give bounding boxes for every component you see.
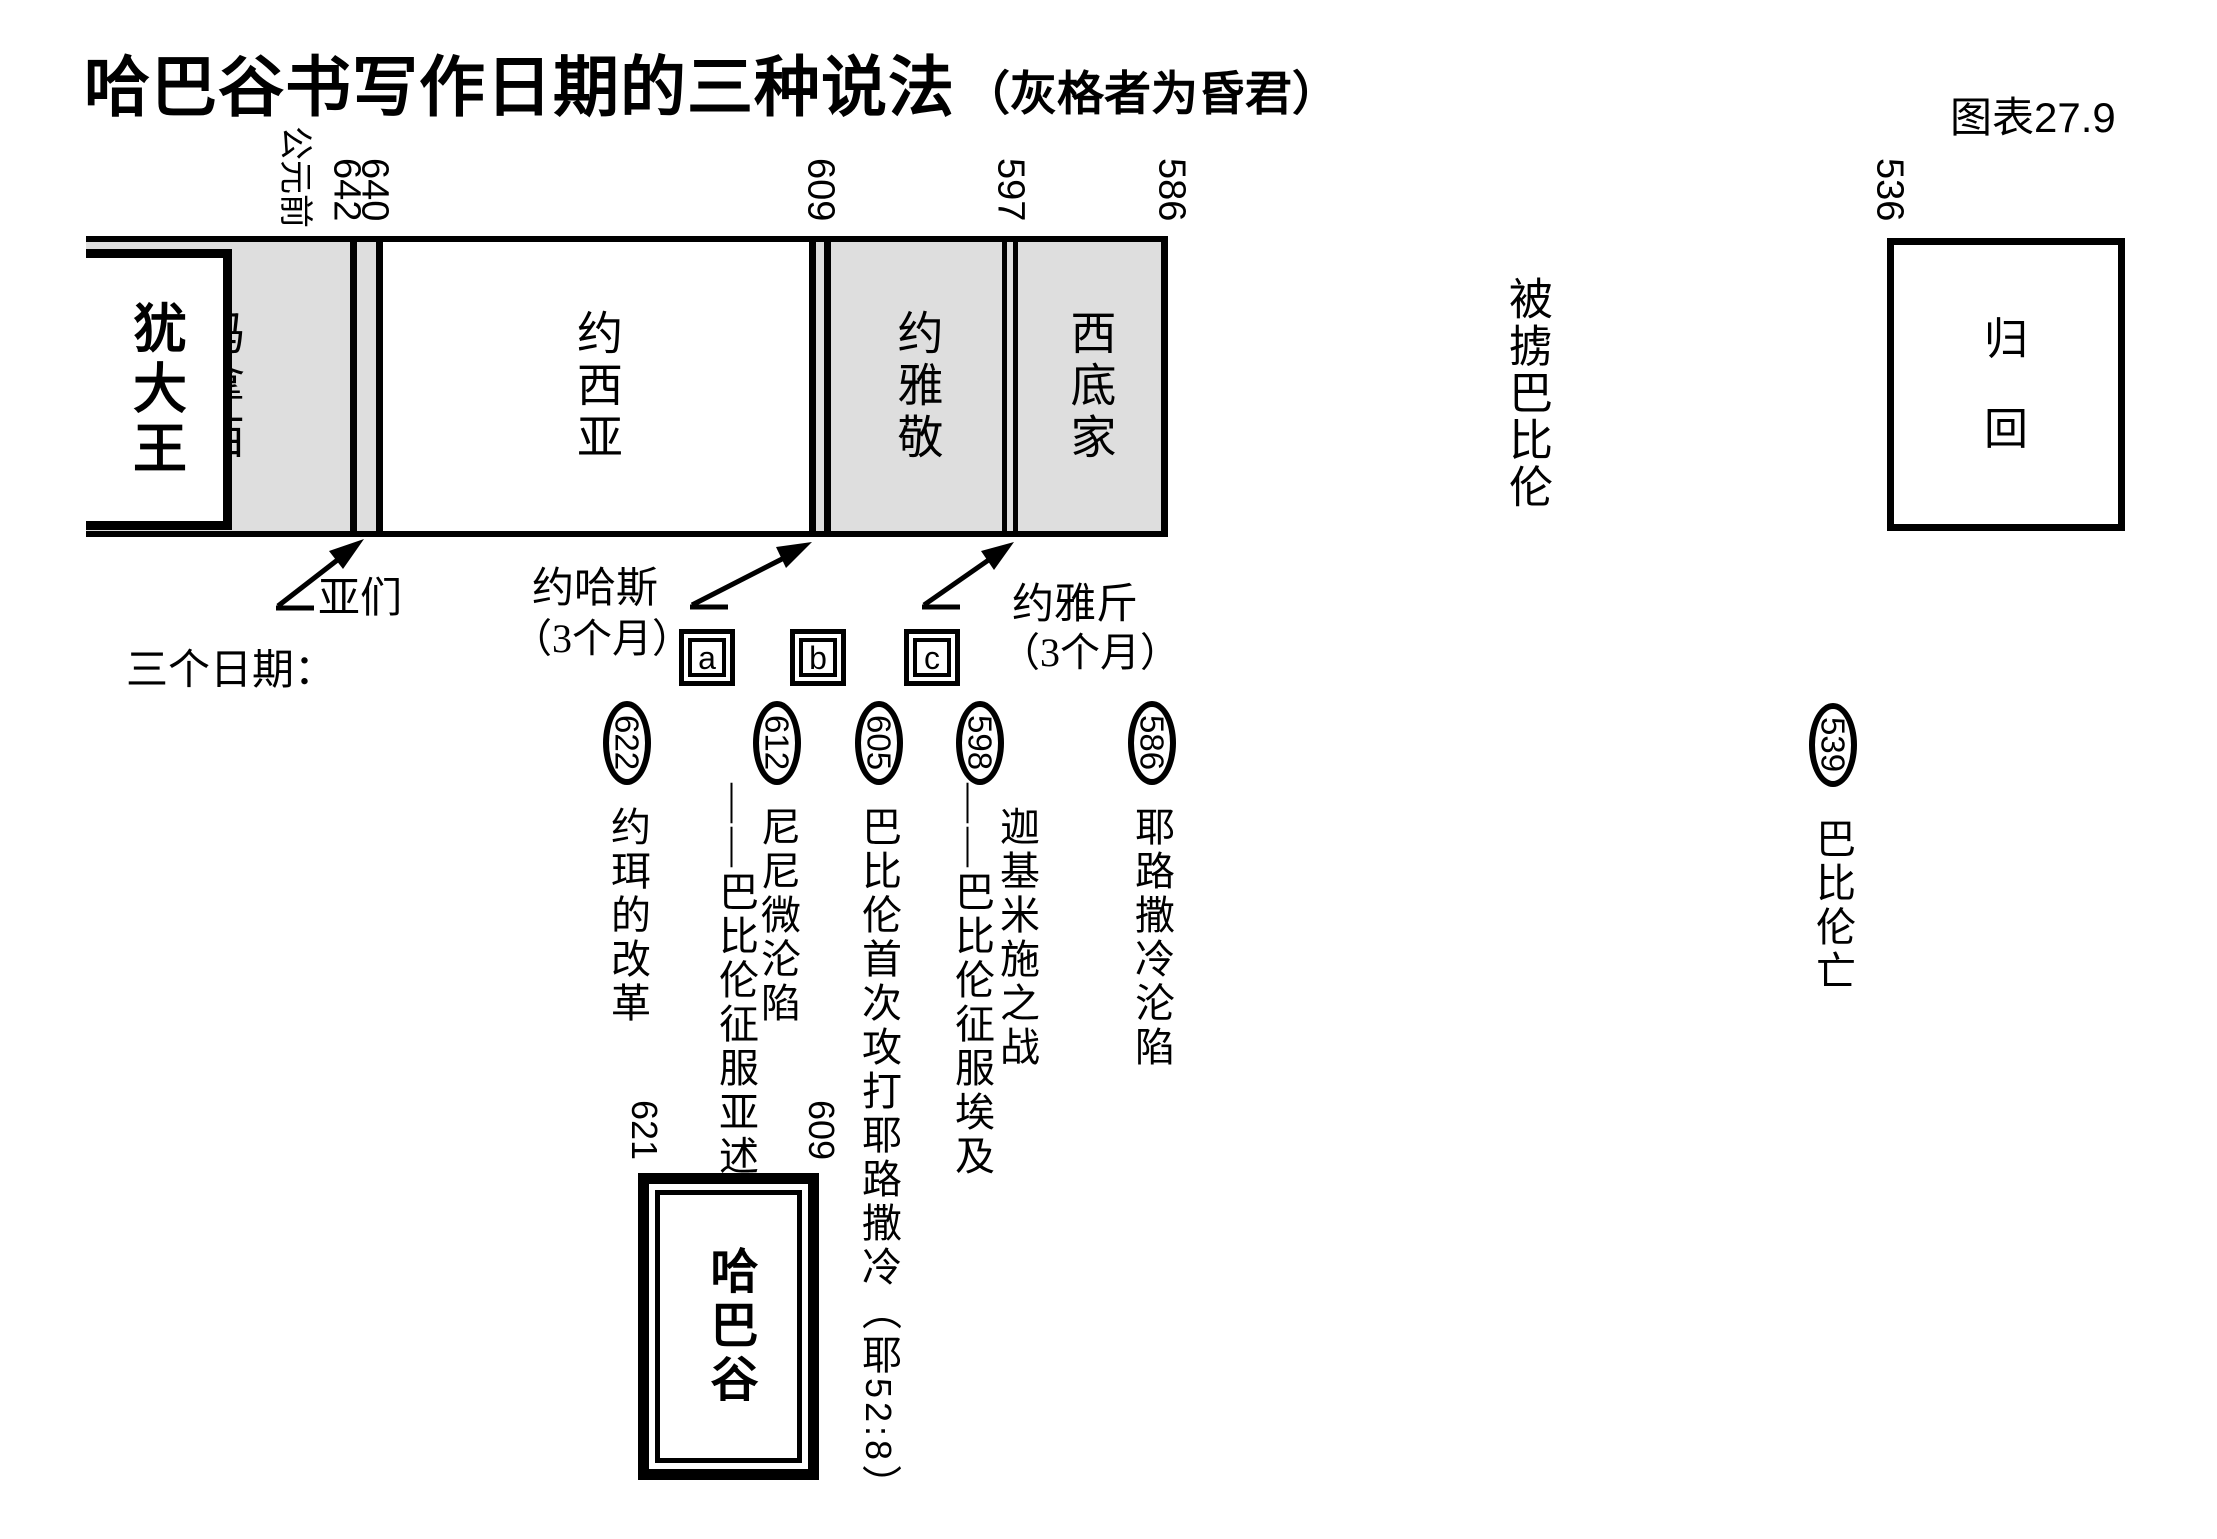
year-label-640: 640 [359,158,389,221]
option-letter-c: c [913,638,951,677]
event-oval-598: 598 [956,701,1004,785]
segment-jehoahaz-strip [809,242,831,531]
event-oval-586: 586 [1128,701,1176,785]
event-text-605-ref: 52:8 [858,1378,899,1464]
title-note: （灰格者为昏君） [963,55,1339,124]
event-text-622: 约珥的改革 [607,806,647,1026]
event-year-622: 622 [611,715,644,770]
segment-zedekiah: 西底家 [1018,242,1168,531]
option-box-b: b [790,629,846,686]
event-oval-612: 612 [753,701,801,785]
habakkuk-box-inner: 哈巴谷 [655,1190,802,1463]
page-title: 哈巴谷书写作日期的三种说法 （灰格者为昏君） [84,34,1339,130]
event-text-605: 巴比伦首次攻打耶路撒冷（耶52:8） [858,806,898,1508]
habakkuk-name: 哈巴谷 [705,1246,753,1408]
habakkuk-end-year: 609 [806,1100,835,1160]
jehoiachin-arrow [922,542,1014,607]
event-year-539: 539 [1817,717,1850,772]
title-main: 哈巴谷书写作日期的三种说法 [84,34,955,130]
option-box-c: c [904,629,960,686]
callout-amon: 亚们 [318,564,402,625]
event-year-612: 612 [761,715,794,770]
three-dates-label: 三个日期： [126,636,336,697]
king-name-zedekiah: 西底家 [1067,309,1113,465]
habakkuk-start-year: 621 [629,1100,658,1160]
event-year-586: 586 [1136,715,1169,770]
event-text-598: 迦基米施之战 [996,806,1036,1070]
year-label-597: 597 [995,158,1025,221]
event-oval-539: 539 [1809,703,1857,787]
event-text-612: 尼尼微沦陷 [757,806,797,1026]
return-box: 归 回 [1887,238,2125,531]
event-text-586: 耶路撒冷沦陷 [1131,806,1171,1070]
return-char-2: 回 [1984,408,2028,452]
event-oval-622: 622 [603,701,651,785]
event-text-605-close: ） [856,1464,901,1508]
era-label: 公元前 [281,126,308,228]
king-name-josiah: 约西亚 [573,309,619,465]
segment-josiah: 约西亚 [383,242,809,531]
return-char-1: 归 [1984,318,2028,362]
segment-jehoiachin-strip [1002,242,1018,531]
callout-jehoahaz-duration: （3个月） [512,606,692,664]
event-year-598: 598 [964,715,997,770]
event-text-612-cont: ——巴比伦征服亚述 [715,783,755,1179]
option-letter-b: b [799,638,837,677]
exile-babylon-label: 被掳巴比伦 [1504,276,1548,511]
event-text-605-main: 巴比伦首次攻打耶路撒冷（耶 [856,806,901,1378]
option-letter-a: a [688,638,726,677]
year-label-609: 609 [805,158,835,221]
kings-timeline-bar: 玛拿西 约西亚 约雅敬 西底家 [86,236,1168,537]
year-label-536: 536 [1874,158,1904,221]
segment-jehoiakim: 约雅敬 [831,242,1002,531]
chart-number: 图表27.9 [1950,84,2116,145]
year-label-586: 586 [1156,158,1186,221]
jehoahaz-arrow [690,542,812,607]
event-oval-605: 605 [855,701,903,785]
callout-jehoiachin-duration: （3个月） [1000,620,1180,678]
habakkuk-dating-diagram: { "title": { "main": "哈巴谷书写作日期的三种说法", "n… [0,0,2217,1539]
event-year-605: 605 [863,715,896,770]
segment-amon-strip [350,242,383,531]
king-name-jehoiakim: 约雅敬 [894,309,940,465]
event-text-539: 巴比伦亡 [1812,818,1852,994]
event-text-598-cont: ——巴比伦征服埃及 [951,783,991,1179]
habakkuk-box: 哈巴谷 [638,1173,819,1480]
judah-kings-header-box: 犹大王 [86,249,232,530]
callout-arrows [0,0,2217,1539]
option-box-a: a [679,629,735,686]
judah-kings-header: 犹大王 [128,300,182,480]
